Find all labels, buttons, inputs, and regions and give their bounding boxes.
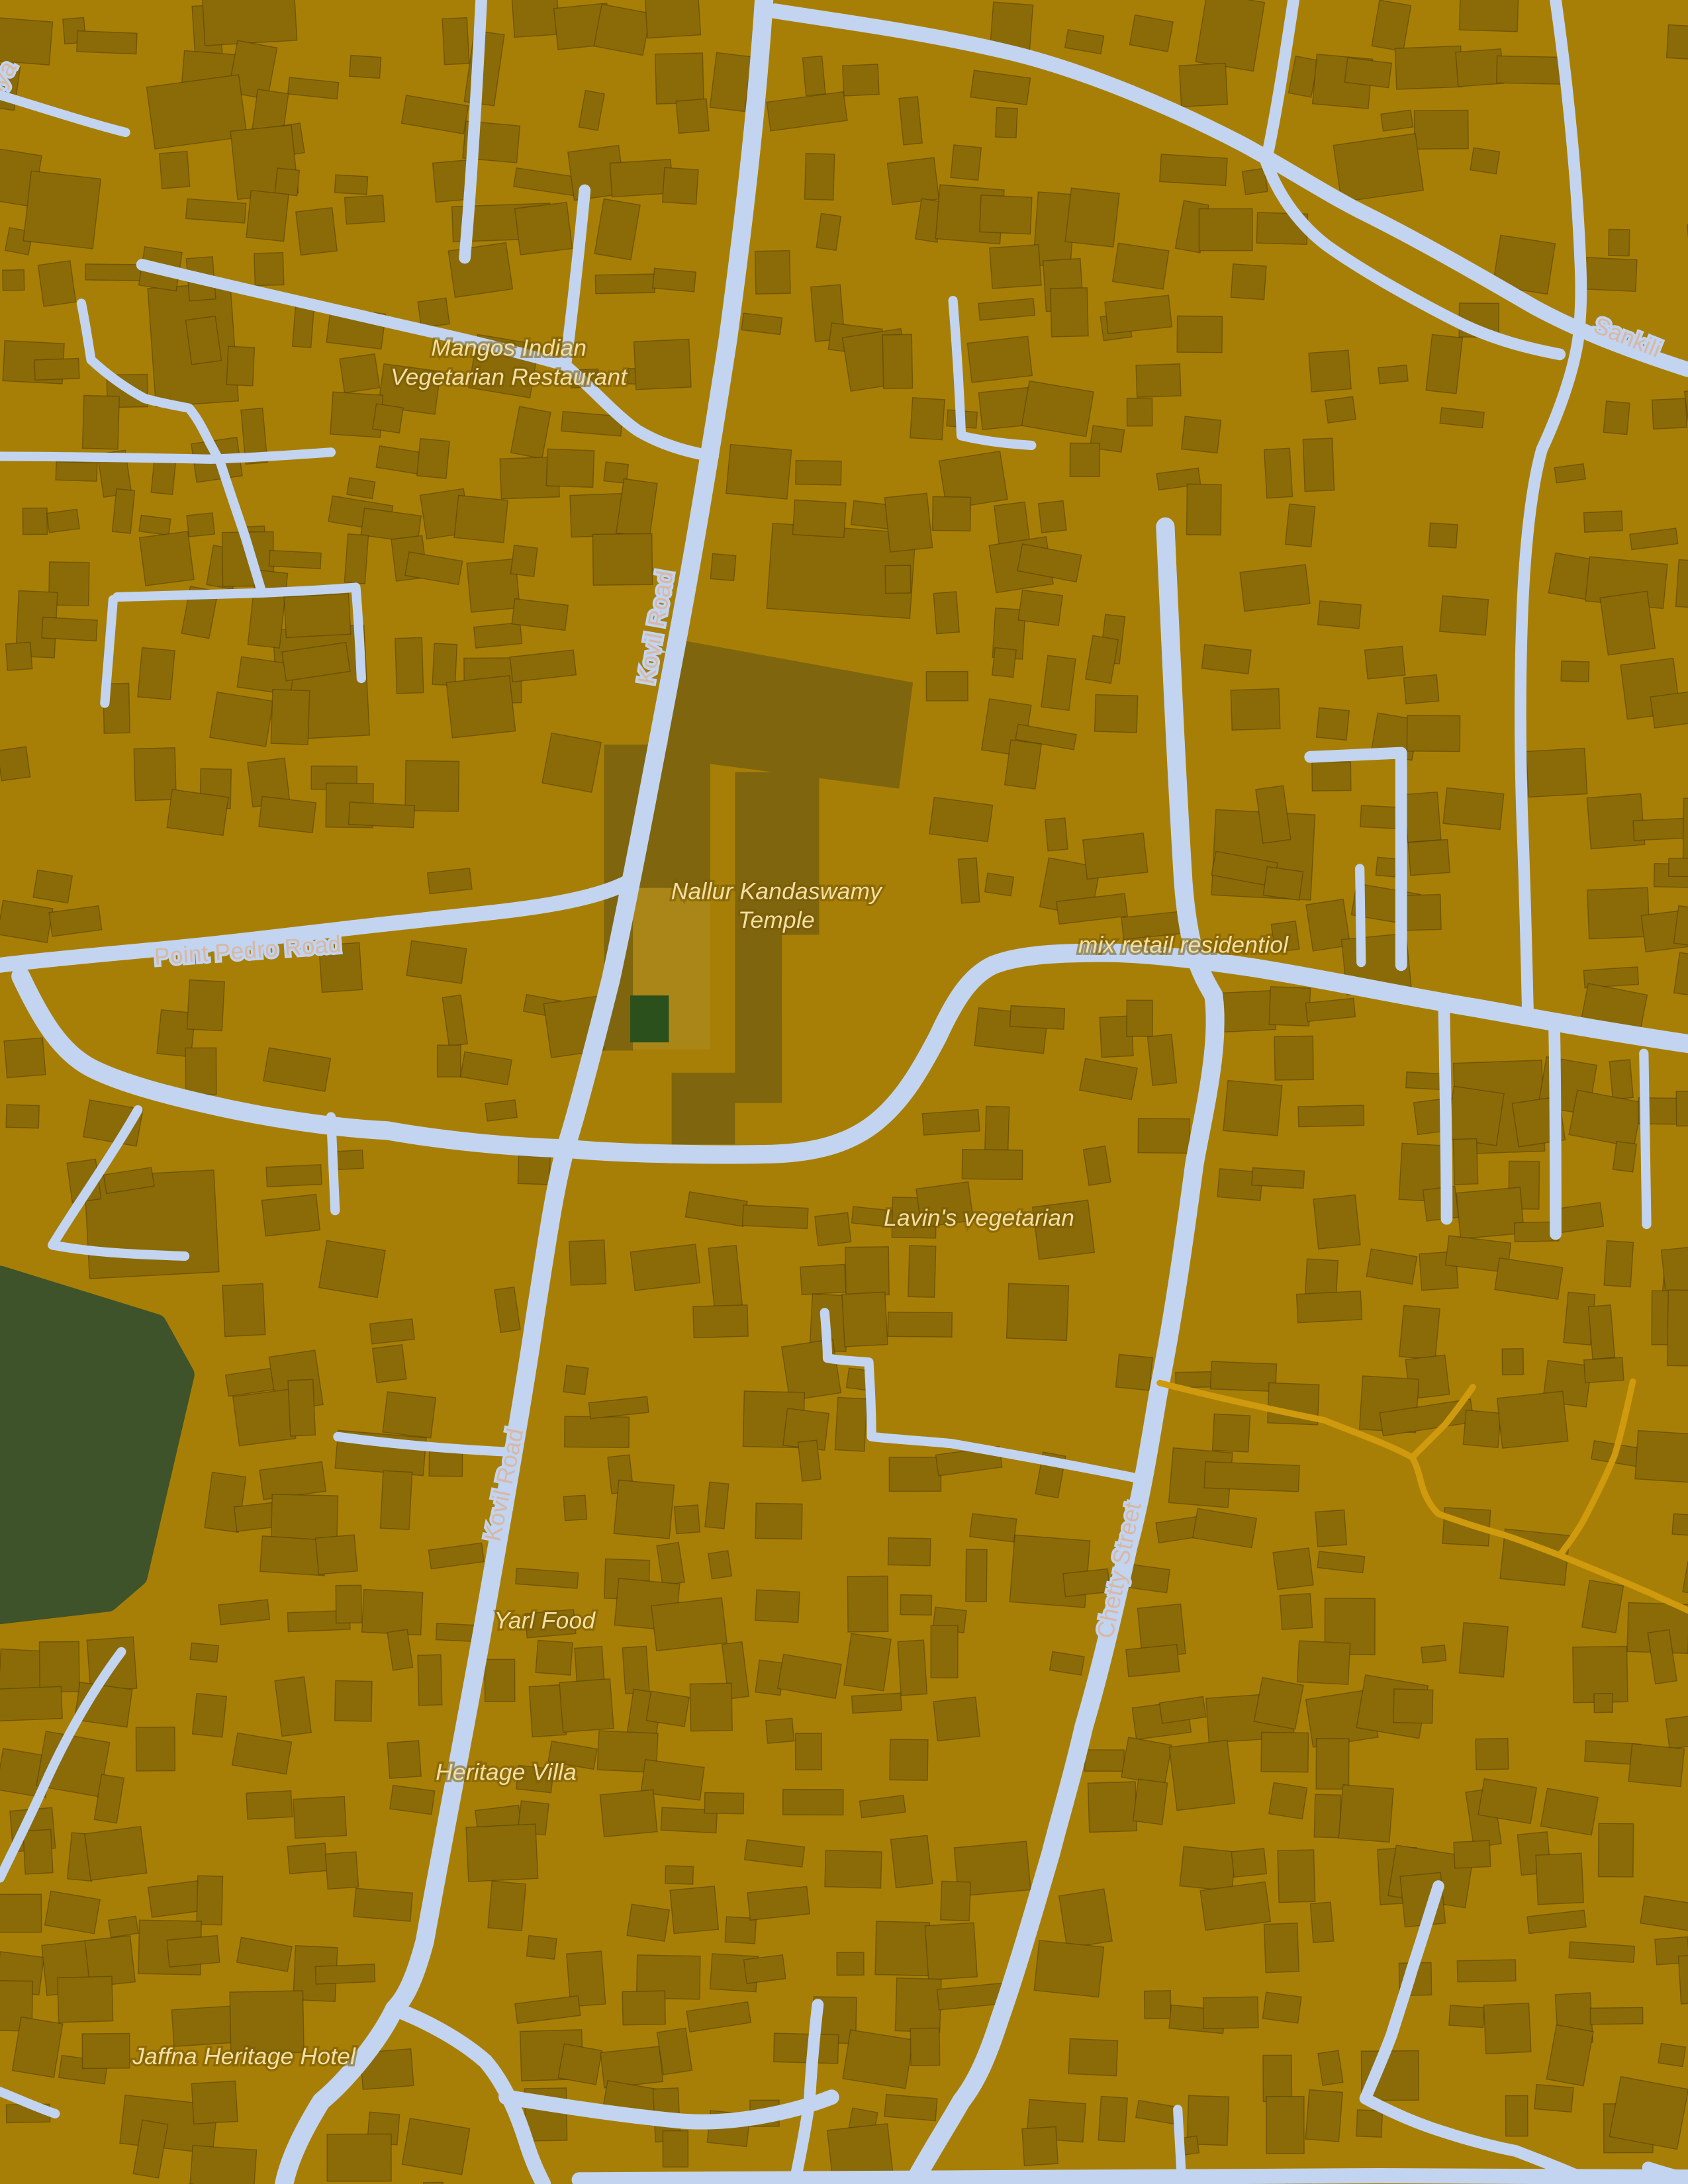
building — [782, 1339, 841, 1400]
building — [755, 1590, 800, 1622]
building — [485, 1659, 514, 1702]
building — [884, 493, 932, 552]
building — [1459, 0, 1518, 32]
building — [792, 500, 846, 537]
building — [705, 1482, 729, 1529]
building — [405, 760, 459, 811]
building — [843, 2030, 913, 2089]
building — [38, 261, 75, 306]
building — [1554, 464, 1585, 483]
poi-label-lavins[interactable]: Lavin's vegetarian — [884, 1205, 1074, 1231]
building — [990, 245, 1041, 289]
building — [835, 1397, 867, 1451]
building — [1502, 1349, 1523, 1375]
building — [1223, 990, 1276, 1032]
poi-label-mangos-line1[interactable]: Mangos Indian — [431, 335, 586, 361]
building — [1463, 1410, 1501, 1448]
building — [900, 1595, 931, 1615]
building — [390, 1786, 435, 1815]
building — [34, 358, 79, 380]
building — [1658, 2044, 1685, 2067]
building — [1376, 857, 1397, 877]
building — [526, 1935, 556, 1959]
building — [852, 1693, 902, 1713]
building — [1314, 1794, 1340, 1838]
temple-inner-notch — [782, 972, 811, 1022]
building — [191, 2081, 238, 2124]
building — [197, 1876, 222, 1925]
building — [261, 1195, 320, 1236]
building — [1018, 590, 1062, 625]
building — [651, 1598, 727, 1651]
building — [1213, 1414, 1250, 1452]
building — [246, 191, 289, 242]
building — [1407, 715, 1460, 752]
building — [1045, 818, 1068, 851]
building — [825, 1850, 882, 1888]
building — [395, 637, 424, 693]
building — [1561, 661, 1589, 682]
building — [630, 1244, 700, 1291]
building — [1446, 1086, 1504, 1146]
building — [1672, 1514, 1688, 1537]
building — [804, 154, 834, 201]
building — [1007, 1283, 1069, 1340]
building — [1449, 2005, 1485, 2028]
building — [1273, 1548, 1313, 1590]
building — [1266, 2097, 1304, 2154]
temple-south-strip — [735, 924, 782, 1103]
building — [929, 797, 993, 842]
building — [1652, 398, 1687, 429]
building — [1662, 1244, 1688, 1293]
building — [1051, 288, 1088, 337]
building — [774, 2033, 839, 2064]
building — [1041, 655, 1076, 710]
building — [77, 31, 137, 54]
building — [387, 1741, 421, 1778]
poi-label-nallur-line1[interactable]: Nallur Kandaswamy — [671, 878, 883, 904]
building — [347, 478, 375, 499]
building — [1534, 2085, 1573, 2113]
building — [744, 1955, 786, 1983]
building — [325, 1852, 358, 1889]
building — [171, 2006, 233, 2046]
building — [910, 398, 945, 440]
building — [1309, 350, 1351, 392]
building — [887, 158, 939, 205]
building — [1426, 334, 1462, 393]
building — [542, 733, 601, 792]
building — [353, 1888, 412, 1921]
building — [563, 1365, 588, 1394]
building — [222, 1283, 265, 1336]
building — [418, 298, 449, 328]
building — [908, 1246, 936, 1297]
building — [335, 1680, 372, 1721]
building — [23, 508, 47, 535]
building — [693, 1305, 748, 1338]
building — [1676, 1091, 1688, 1126]
building — [1179, 64, 1227, 107]
building — [4, 1038, 46, 1077]
building — [1240, 565, 1310, 612]
building — [1669, 858, 1688, 877]
building — [1313, 1195, 1360, 1249]
building — [1095, 694, 1138, 732]
building — [1582, 1580, 1624, 1633]
building — [23, 1829, 53, 1874]
building — [569, 1240, 606, 1285]
building — [327, 2134, 391, 2181]
building — [676, 99, 709, 133]
building — [345, 195, 385, 224]
building — [1317, 707, 1350, 740]
building — [710, 553, 736, 580]
building — [1429, 523, 1458, 548]
building — [1009, 1006, 1064, 1030]
building — [895, 1978, 941, 2032]
building — [1470, 148, 1500, 174]
building — [1169, 1740, 1235, 1810]
poi-label-jaffna-hotel[interactable]: Jaffna Heritage Hotel — [132, 2043, 356, 2070]
building — [226, 346, 254, 386]
building — [140, 531, 195, 586]
building — [885, 565, 911, 593]
building — [1303, 438, 1334, 491]
building — [1039, 501, 1066, 533]
building — [1476, 1739, 1509, 1770]
building — [1286, 504, 1315, 547]
temple-south-tail — [672, 1073, 735, 1144]
building — [1316, 1739, 1349, 1790]
building — [56, 461, 97, 481]
building — [558, 2044, 602, 2085]
building — [474, 623, 522, 649]
building — [315, 1964, 375, 1984]
building — [269, 551, 322, 569]
building — [1395, 46, 1462, 89]
building — [1261, 1732, 1309, 1772]
building — [5, 642, 32, 670]
building — [842, 1292, 888, 1347]
building — [910, 2028, 939, 2066]
building — [1459, 1623, 1508, 1677]
building — [0, 747, 30, 781]
building — [1310, 1902, 1333, 1942]
building — [233, 1389, 296, 1446]
building — [1223, 1081, 1282, 1136]
building — [933, 1697, 980, 1741]
building — [559, 1679, 614, 1733]
building — [350, 56, 381, 79]
building — [336, 1585, 361, 1623]
building — [1404, 792, 1441, 842]
building — [594, 4, 651, 55]
building — [985, 873, 1014, 895]
building — [595, 274, 655, 294]
building — [890, 1739, 928, 1780]
building — [888, 1538, 930, 1566]
building — [246, 1791, 293, 1819]
building — [796, 461, 841, 485]
building — [1526, 749, 1587, 797]
building — [967, 336, 1032, 383]
building — [1454, 1841, 1491, 1868]
temple-green-square — [630, 995, 669, 1042]
building — [1200, 1882, 1270, 1930]
building — [23, 171, 101, 249]
building — [418, 1655, 442, 1706]
building — [1536, 1853, 1583, 1905]
building — [1263, 2055, 1291, 2101]
building — [1085, 1750, 1125, 1771]
building — [160, 152, 190, 189]
building — [402, 2118, 469, 2175]
building — [139, 515, 171, 535]
building — [690, 1683, 732, 1731]
building — [614, 1480, 674, 1539]
building — [438, 1045, 461, 1077]
building — [134, 748, 176, 801]
building — [167, 790, 228, 835]
building — [1148, 1034, 1177, 1085]
building — [592, 533, 652, 585]
building — [1231, 1848, 1266, 1877]
building — [663, 167, 698, 204]
building — [417, 439, 449, 478]
building — [284, 594, 351, 638]
building — [665, 1866, 694, 1884]
building — [510, 545, 537, 576]
building — [1065, 188, 1119, 247]
building — [959, 858, 980, 903]
building — [802, 56, 825, 96]
building — [1505, 2095, 1528, 2136]
building — [1127, 398, 1152, 426]
building — [454, 495, 508, 543]
building — [187, 980, 224, 1031]
building — [1113, 243, 1169, 289]
building — [1381, 110, 1413, 131]
building — [185, 1048, 216, 1095]
building — [1121, 1737, 1172, 1785]
building — [941, 1881, 971, 1921]
building — [1393, 1689, 1433, 1723]
building — [466, 1824, 538, 1882]
building — [319, 1240, 385, 1297]
building — [1440, 596, 1489, 635]
building — [448, 243, 512, 298]
building — [743, 1205, 808, 1229]
building — [488, 1881, 526, 1931]
building — [1587, 887, 1650, 939]
building — [1609, 1060, 1633, 1099]
building — [201, 0, 297, 46]
building — [563, 1495, 586, 1521]
building — [446, 676, 515, 738]
poi-label-mangos-line2[interactable]: Vegetarian Restaurant — [391, 363, 628, 390]
building — [138, 648, 175, 700]
building — [1145, 1991, 1171, 2019]
building — [1199, 208, 1252, 250]
building — [1333, 134, 1423, 203]
building — [340, 354, 379, 393]
building — [1590, 2007, 1642, 2025]
building — [890, 1835, 932, 1888]
building — [600, 1790, 657, 1837]
building — [1609, 2077, 1688, 2150]
building — [42, 617, 97, 641]
building — [1609, 229, 1630, 255]
building — [1098, 2097, 1127, 2142]
building — [710, 52, 751, 111]
building — [1443, 788, 1504, 829]
building — [627, 1904, 669, 1941]
building — [931, 1625, 958, 1678]
building — [653, 268, 696, 292]
building — [266, 1165, 322, 1187]
building — [442, 18, 469, 65]
building — [1378, 365, 1408, 384]
building — [815, 1212, 851, 1246]
building — [1594, 1694, 1613, 1713]
poi-label-yarl-food[interactable]: Yarl Food — [494, 1607, 596, 1633]
building — [82, 2033, 130, 2068]
building — [1105, 295, 1172, 334]
building — [708, 1246, 742, 1308]
building — [259, 796, 316, 833]
building — [515, 203, 573, 255]
building — [970, 1514, 1017, 1542]
building — [33, 870, 72, 903]
building — [1325, 396, 1356, 423]
building — [755, 1503, 802, 1539]
building — [1583, 511, 1622, 532]
building — [1298, 1105, 1364, 1127]
building — [1667, 1290, 1688, 1367]
building — [1231, 689, 1280, 731]
building — [766, 1718, 794, 1743]
building — [189, 2146, 256, 2184]
building — [383, 1392, 436, 1438]
building — [898, 1640, 927, 1696]
poi-label-heritage-villa[interactable]: Heritage Villa — [436, 1759, 577, 1786]
building — [1129, 15, 1173, 52]
building — [187, 513, 214, 537]
building — [428, 868, 472, 894]
building — [1204, 1462, 1299, 1492]
building — [1297, 1291, 1362, 1323]
building — [39, 1641, 79, 1692]
building — [1177, 316, 1222, 352]
map-canvas[interactable]: Point Pedro Road Kovil Road Kovil Road C… — [0, 0, 1688, 2184]
building — [113, 489, 135, 533]
building — [380, 1471, 412, 1529]
building — [3, 270, 24, 291]
building — [1280, 1594, 1312, 1630]
building — [1088, 1782, 1137, 1832]
building — [1160, 154, 1227, 185]
building — [1598, 1823, 1633, 1877]
building — [1264, 1923, 1299, 1973]
building — [1269, 987, 1310, 1026]
building — [1262, 1992, 1301, 2023]
building — [1600, 591, 1655, 655]
building — [190, 1643, 218, 1662]
building — [1683, 798, 1688, 864]
building — [1318, 601, 1362, 629]
building — [888, 1312, 952, 1337]
building — [922, 1110, 980, 1136]
building — [167, 1936, 220, 1967]
building — [925, 1923, 977, 1979]
building — [800, 1264, 847, 1295]
building — [1667, 24, 1688, 62]
building — [1399, 1305, 1440, 1359]
building — [1633, 817, 1688, 841]
building — [1231, 264, 1266, 300]
building — [1540, 1788, 1598, 1835]
building — [349, 802, 415, 828]
building — [1456, 1187, 1524, 1239]
building — [1583, 257, 1637, 292]
building — [1243, 168, 1268, 195]
building — [369, 1319, 414, 1344]
building — [1201, 645, 1251, 674]
building — [663, 2131, 688, 2167]
building — [1252, 1167, 1305, 1188]
building — [951, 145, 981, 180]
building — [0, 17, 52, 65]
building — [1116, 1354, 1153, 1390]
building — [186, 199, 246, 223]
building — [1068, 2038, 1118, 2075]
building — [1483, 2003, 1530, 2054]
building — [316, 1535, 357, 1574]
building — [1297, 1641, 1350, 1684]
building — [373, 1345, 406, 1383]
building — [1315, 1510, 1346, 1547]
building — [1203, 1997, 1258, 2028]
building — [1414, 111, 1468, 150]
building — [725, 1917, 756, 1944]
building — [0, 1686, 62, 1722]
building — [193, 1694, 227, 1737]
building — [1254, 1678, 1303, 1729]
building — [373, 404, 403, 433]
building — [335, 175, 368, 195]
poi-label-mix-retail[interactable]: mix retail residentiol — [1078, 932, 1289, 958]
building — [645, 0, 700, 38]
poi-label-nallur-line2[interactable]: Temple — [738, 907, 815, 933]
building — [406, 940, 467, 983]
building — [565, 1416, 630, 1447]
building — [85, 264, 144, 281]
building — [436, 1623, 475, 1642]
building — [429, 1450, 463, 1477]
building — [1263, 867, 1303, 901]
building — [109, 1916, 138, 1937]
building — [432, 643, 457, 686]
building — [844, 1633, 891, 1691]
building — [1365, 646, 1405, 679]
building — [1408, 839, 1450, 875]
building — [1613, 1142, 1636, 1172]
building — [755, 251, 790, 295]
building — [1344, 58, 1391, 88]
building — [1360, 805, 1397, 829]
